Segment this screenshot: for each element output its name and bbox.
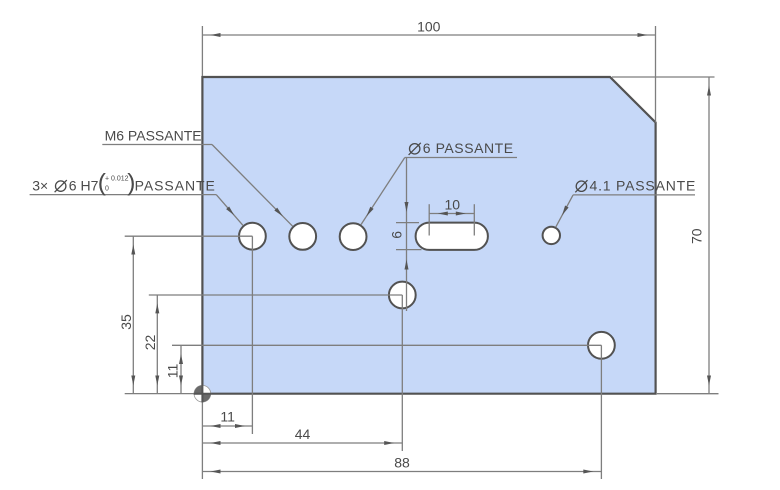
svg-text:4.1 PASSANTE: 4.1 PASSANTE	[590, 178, 697, 194]
svg-text:0: 0	[105, 185, 109, 192]
svg-text:6: 6	[389, 231, 405, 239]
svg-text:+ 0.012: + 0.012	[105, 176, 129, 183]
svg-text:3×: 3×	[32, 178, 48, 194]
svg-text:88: 88	[394, 455, 410, 471]
svg-text:35: 35	[118, 314, 134, 330]
svg-text:22: 22	[142, 335, 158, 351]
svg-text:70: 70	[689, 228, 705, 244]
svg-text:44: 44	[295, 426, 311, 442]
svg-text:100: 100	[417, 18, 441, 34]
svg-text:10: 10	[445, 196, 461, 212]
svg-text:11: 11	[220, 408, 235, 424]
svg-text:6 H7: 6 H7	[69, 178, 99, 194]
svg-text:PASSANTE: PASSANTE	[135, 178, 216, 194]
svg-text:6 PASSANTE: 6 PASSANTE	[423, 140, 514, 156]
svg-text:M6 PASSANTE: M6 PASSANTE	[105, 127, 202, 143]
svg-text:11: 11	[164, 364, 180, 379]
